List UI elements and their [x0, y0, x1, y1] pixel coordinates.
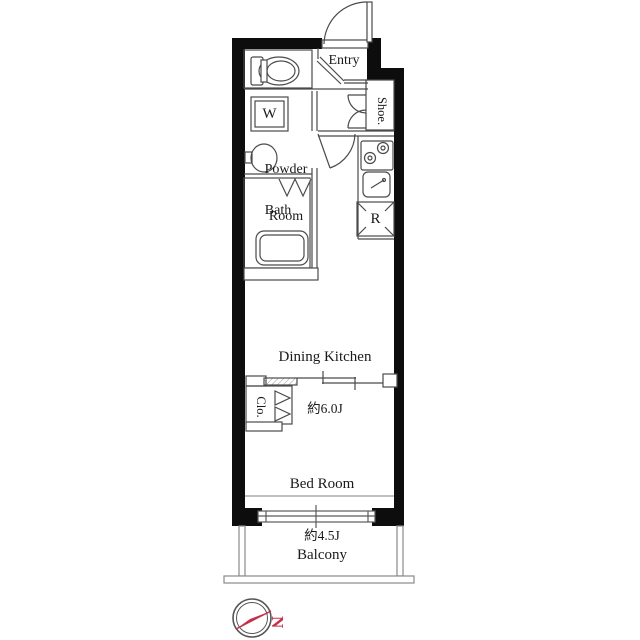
entry-label: Entry — [320, 53, 368, 69]
compass-icon: N — [233, 599, 287, 637]
bed-room-name: Bed Room — [262, 476, 382, 493]
dining-kitchen-name: Dining Kitchen — [265, 349, 385, 366]
shoe-closet-label: Shoe. — [375, 89, 389, 133]
compass-north-label: N — [268, 616, 287, 629]
powder-room-door — [318, 134, 355, 168]
dining-kitchen-size: 約6.0J — [265, 400, 385, 417]
closet-label: Clo. — [254, 385, 268, 429]
stove-icon — [361, 141, 393, 170]
sink-icon — [363, 172, 390, 197]
balcony-label: Balcony — [272, 547, 372, 564]
refrigerator-label: R — [357, 211, 394, 228]
toilet-icon — [251, 57, 299, 85]
washing-machine-label: W — [251, 106, 288, 123]
entry-door — [322, 2, 372, 48]
bath-label: Bath — [248, 203, 308, 219]
powder-room-label: Powder Room — [258, 131, 314, 256]
dining-kitchen-label: Dining Kitchen 約6.0J — [265, 315, 385, 451]
bed-room-size: 約4.5J — [262, 527, 382, 544]
powder-room-line1: Powder — [258, 162, 314, 178]
floor-plan: N Entry Shoe. Powder Room W Bath R Dinin… — [0, 0, 640, 640]
